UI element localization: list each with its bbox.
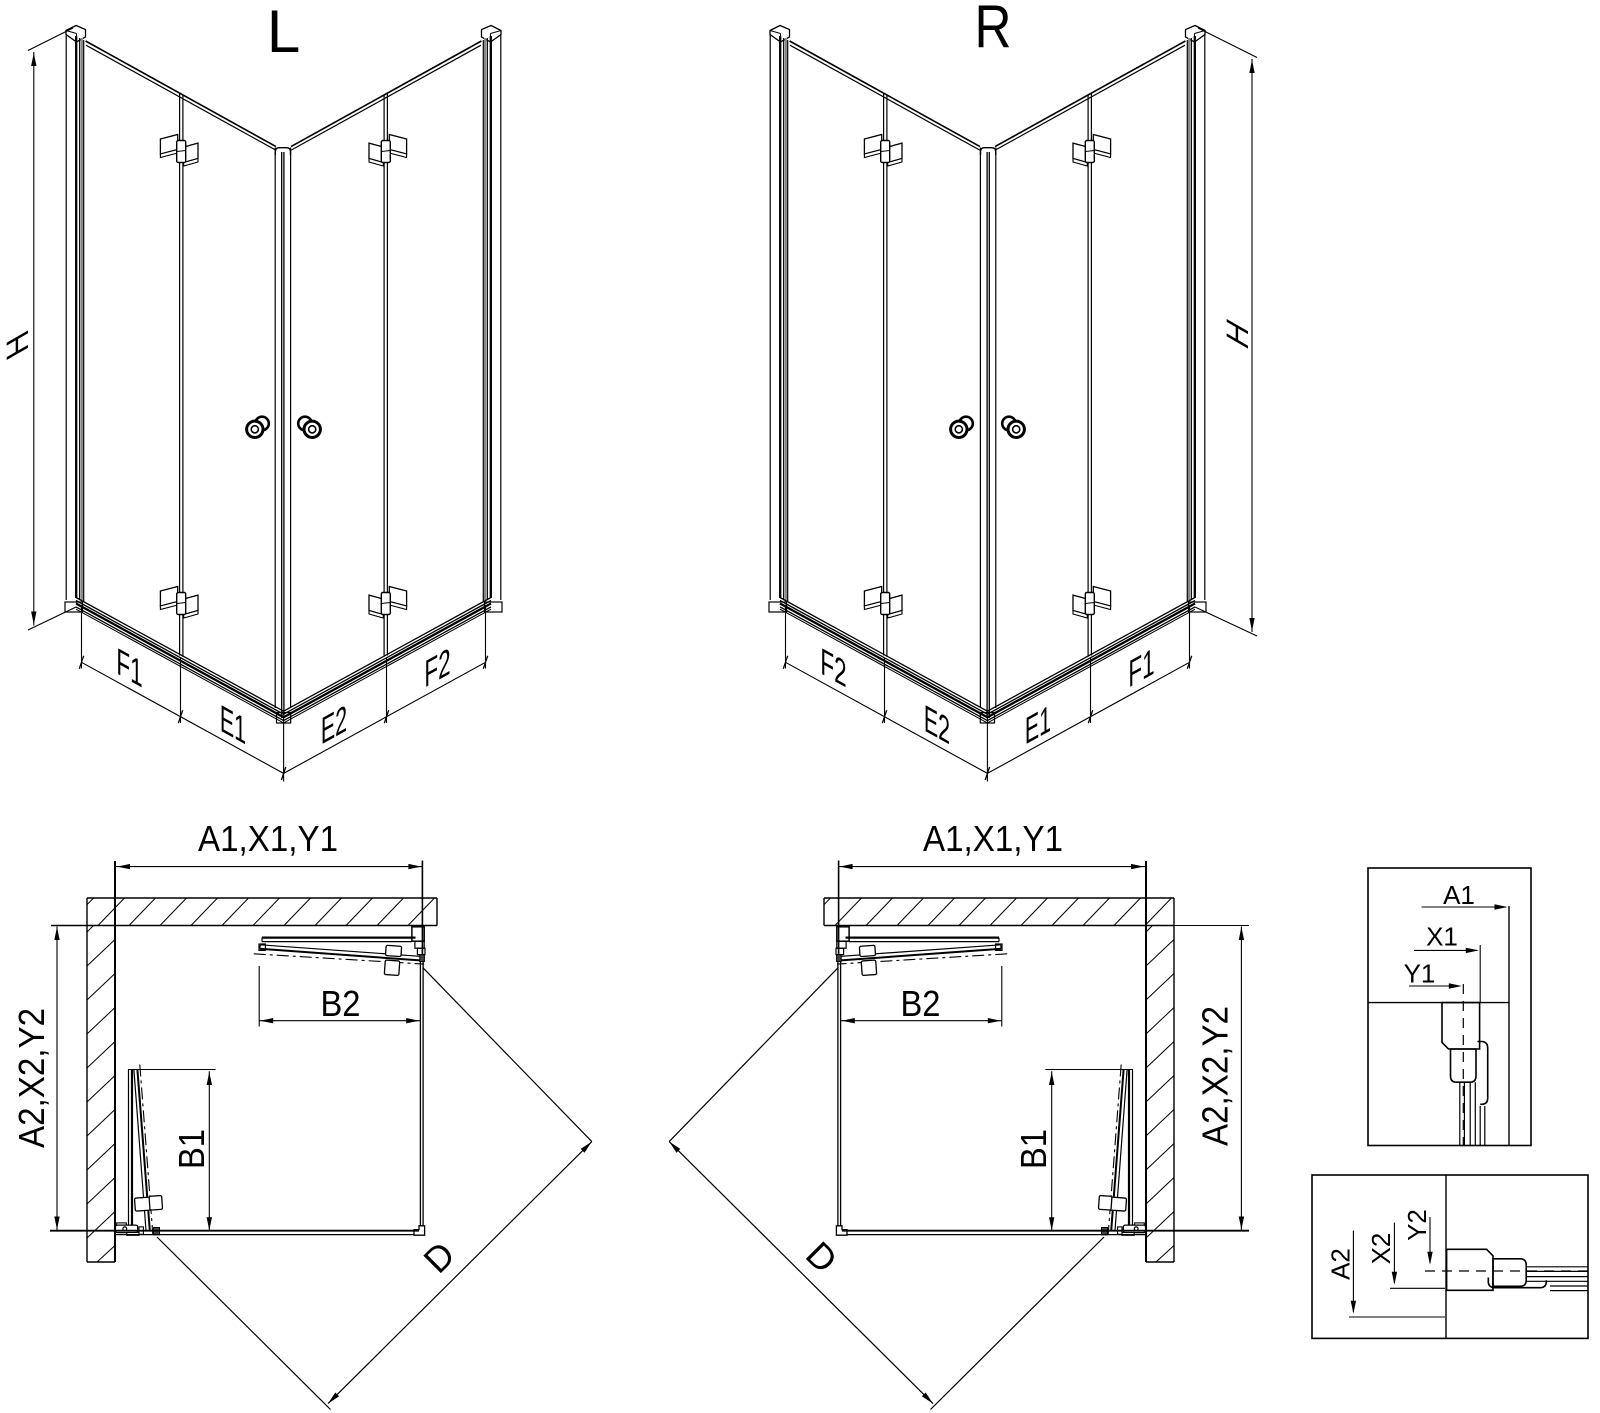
svg-text:R: R [975,0,1012,61]
svg-text:Y1: Y1 [1404,959,1436,989]
svg-text:A1: A1 [1443,880,1475,910]
svg-text:A2: A2 [1326,1248,1356,1280]
svg-text:A1,X1,Y1: A1,X1,Y1 [198,818,338,859]
svg-text:B2: B2 [321,983,361,1024]
svg-text:A2,X2,Y2: A2,X2,Y2 [1195,1006,1236,1146]
svg-text:B2: B2 [901,983,941,1024]
svg-text:A2,X2,Y2: A2,X2,Y2 [11,1008,52,1148]
svg-text:L: L [267,0,300,65]
svg-text:X2: X2 [1366,1233,1396,1265]
svg-text:B1: B1 [1013,1129,1054,1169]
svg-text:Y2: Y2 [1402,1209,1432,1241]
svg-text:B1: B1 [171,1129,212,1169]
svg-text:X1: X1 [1426,922,1458,952]
svg-text:A1,X1,Y1: A1,X1,Y1 [923,818,1063,859]
